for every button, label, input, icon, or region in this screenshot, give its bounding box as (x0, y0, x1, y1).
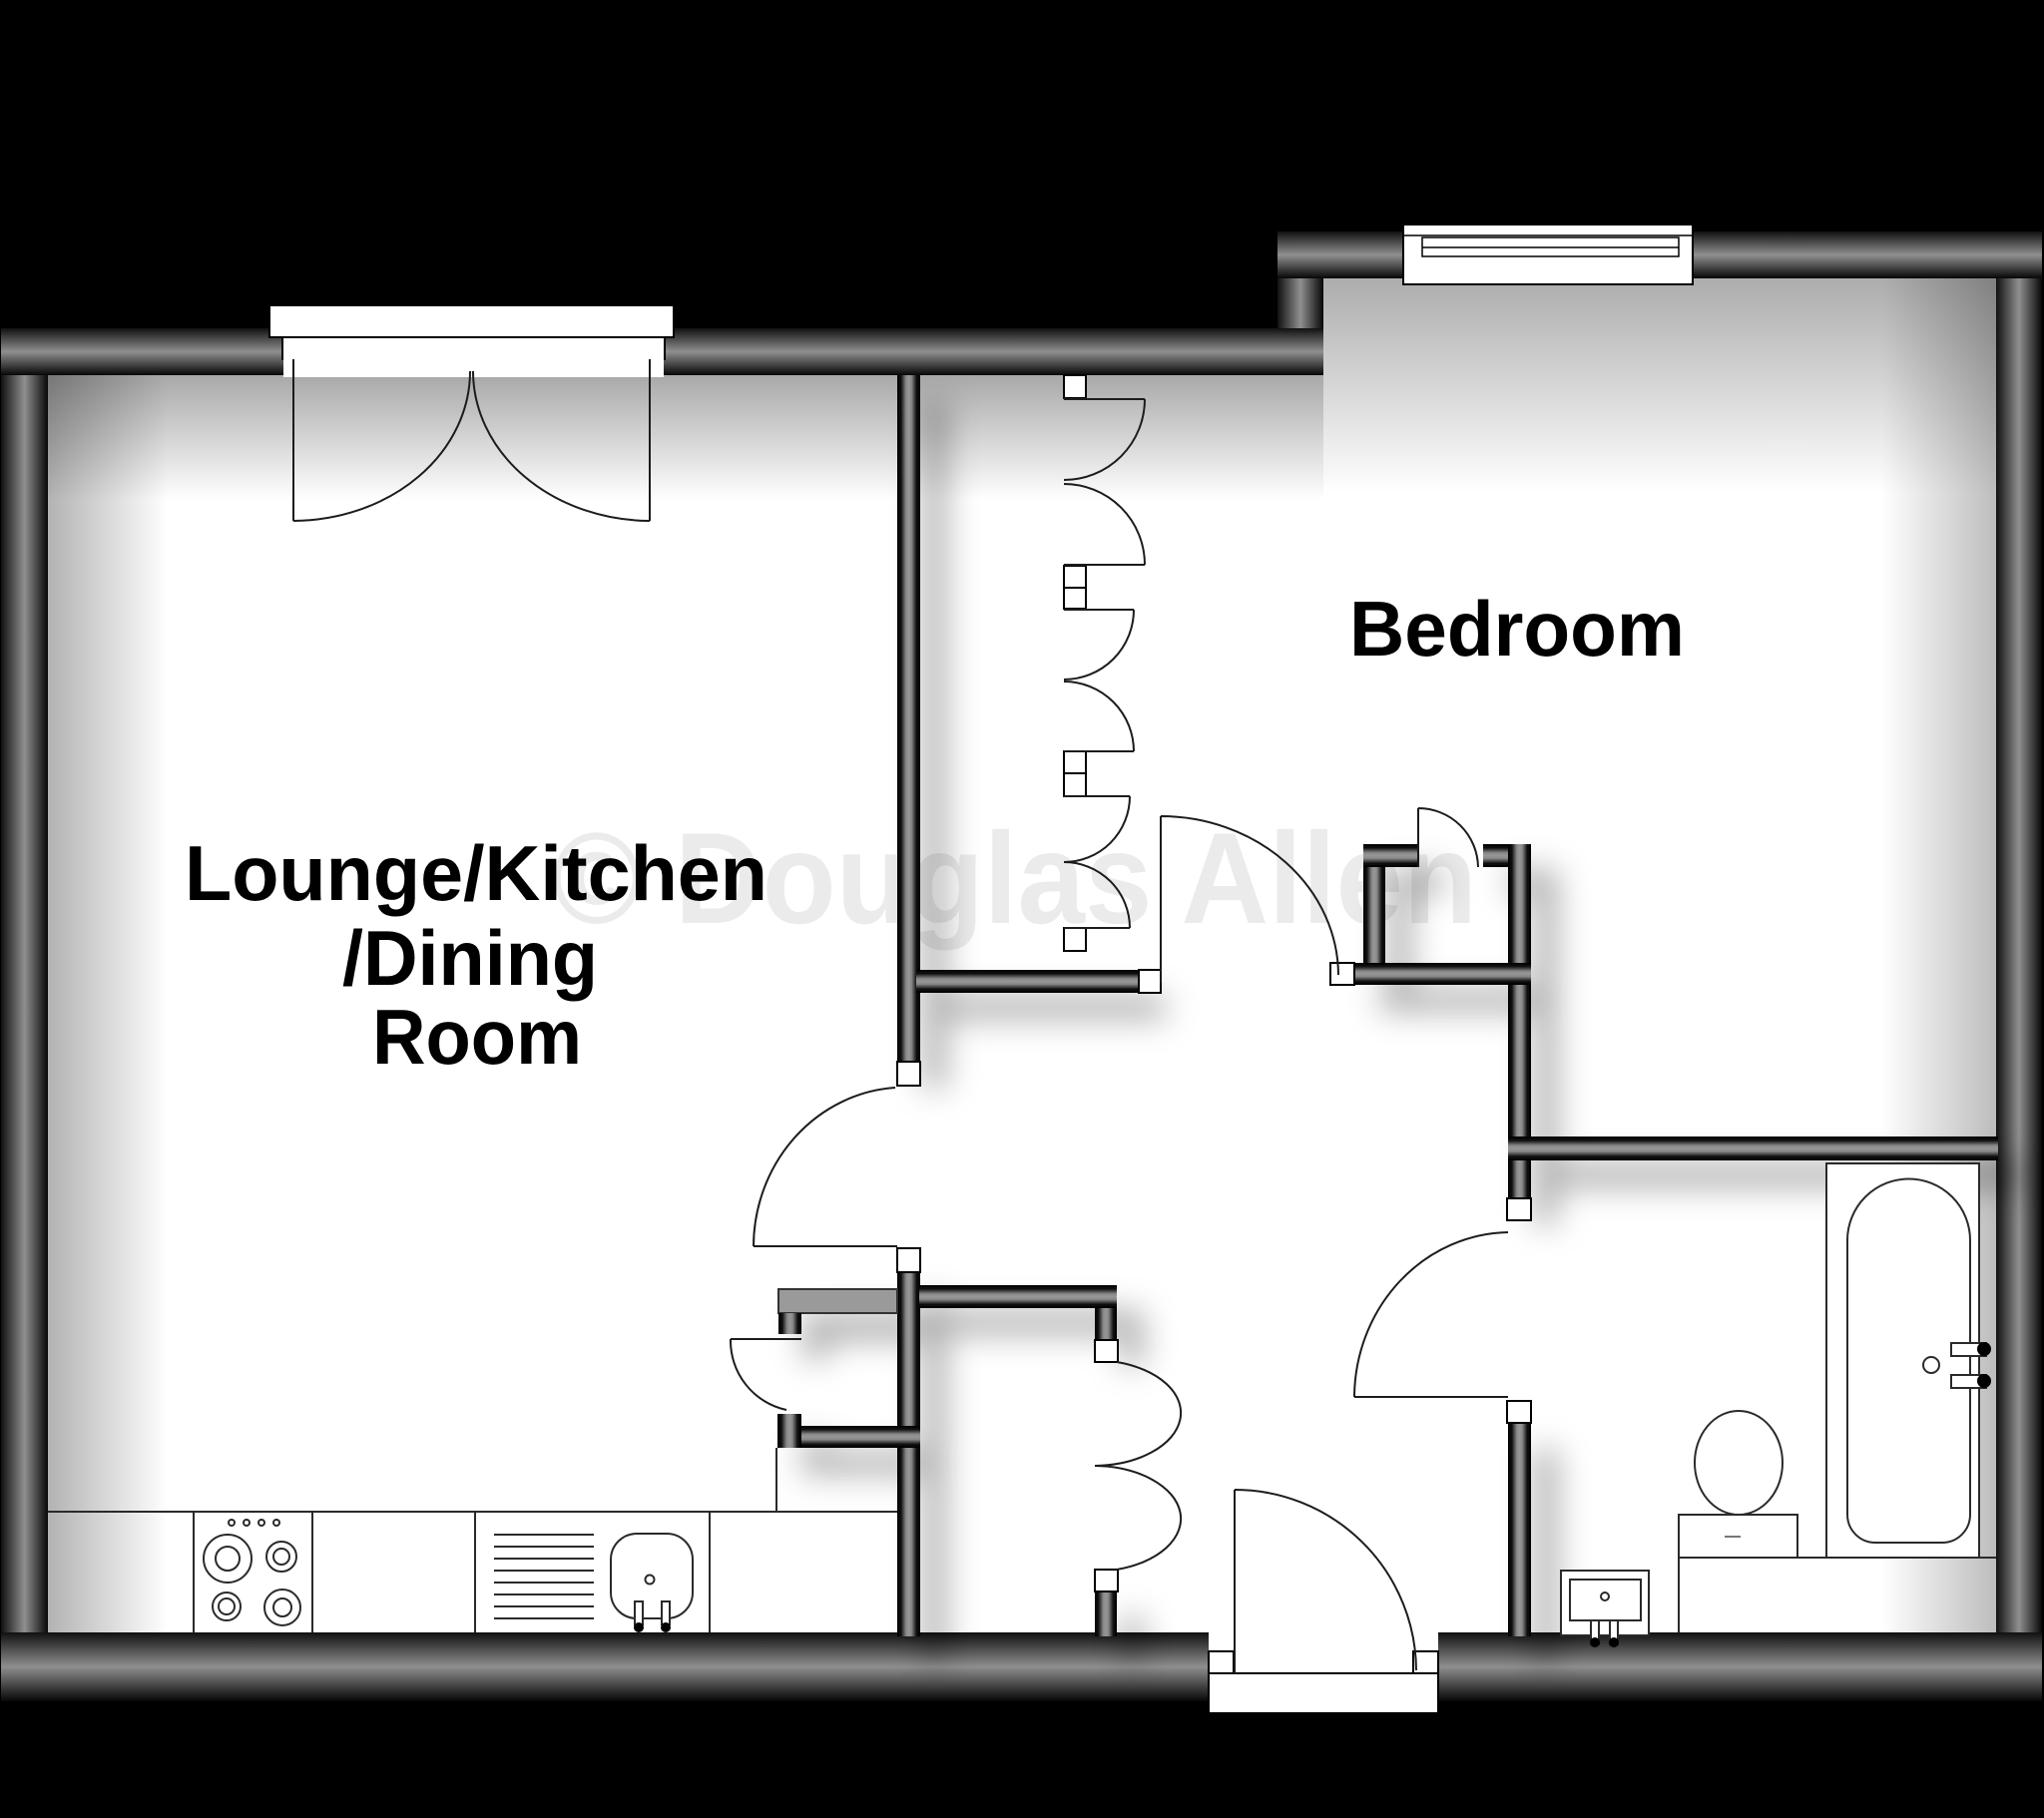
svg-text:Bedroom: Bedroom (1349, 585, 1685, 673)
svg-text:Room: Room (372, 993, 582, 1081)
svg-text:/Dining: /Dining (342, 914, 598, 1002)
svg-text:Lounge/Kitchen: Lounge/Kitchen (185, 829, 767, 917)
